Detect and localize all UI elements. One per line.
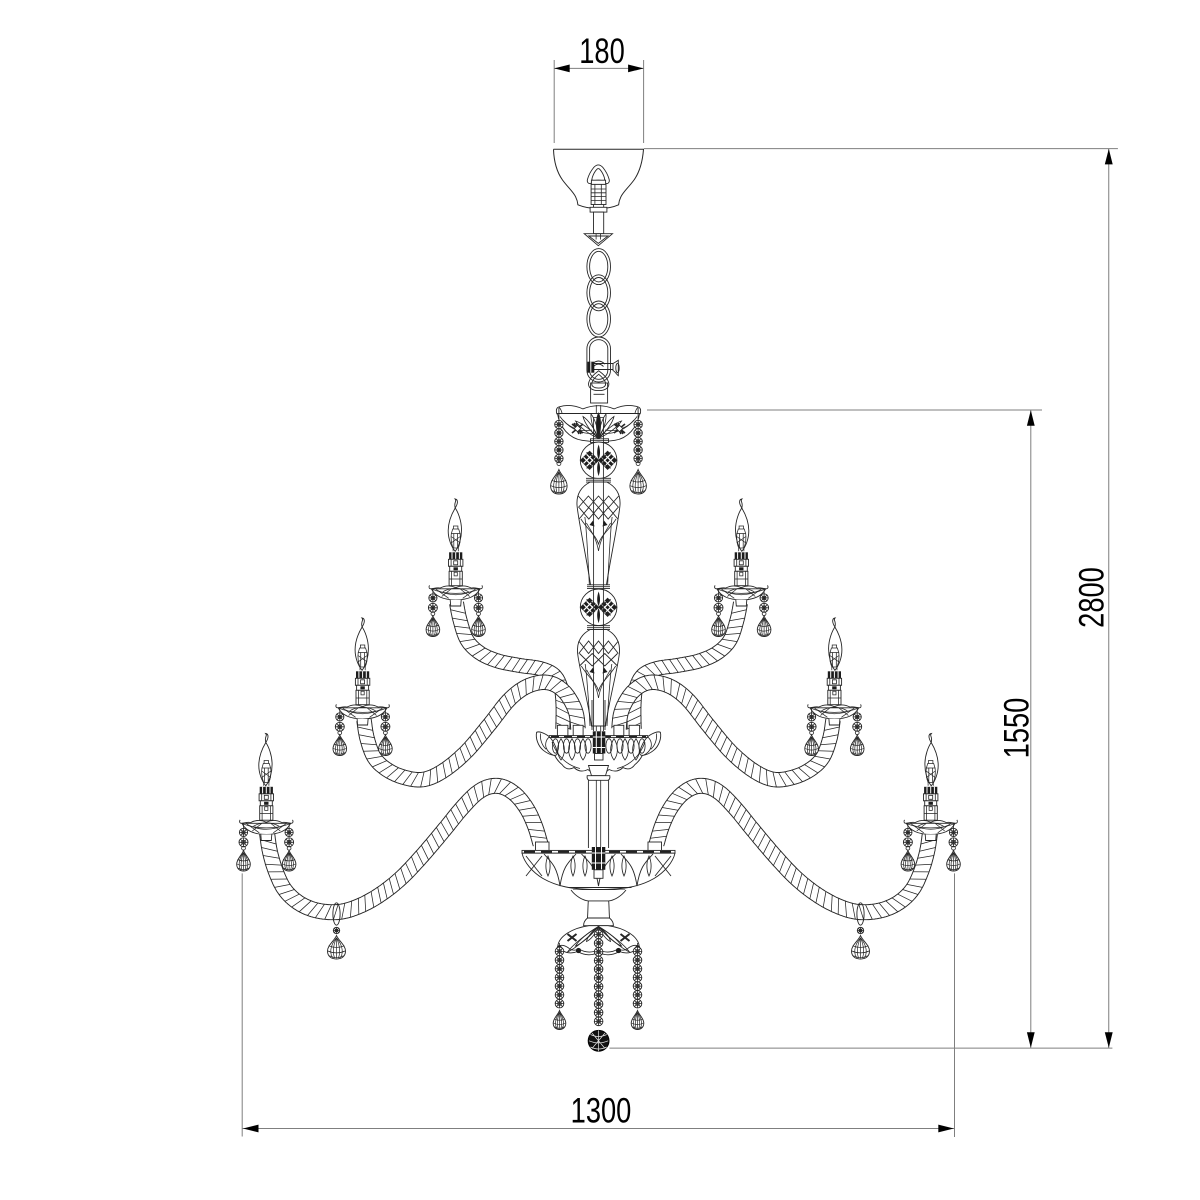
svg-text:2800: 2800 <box>1072 567 1111 628</box>
svg-text:1550: 1550 <box>997 698 1036 759</box>
svg-text:180: 180 <box>579 32 625 71</box>
svg-text:1300: 1300 <box>571 1091 632 1130</box>
